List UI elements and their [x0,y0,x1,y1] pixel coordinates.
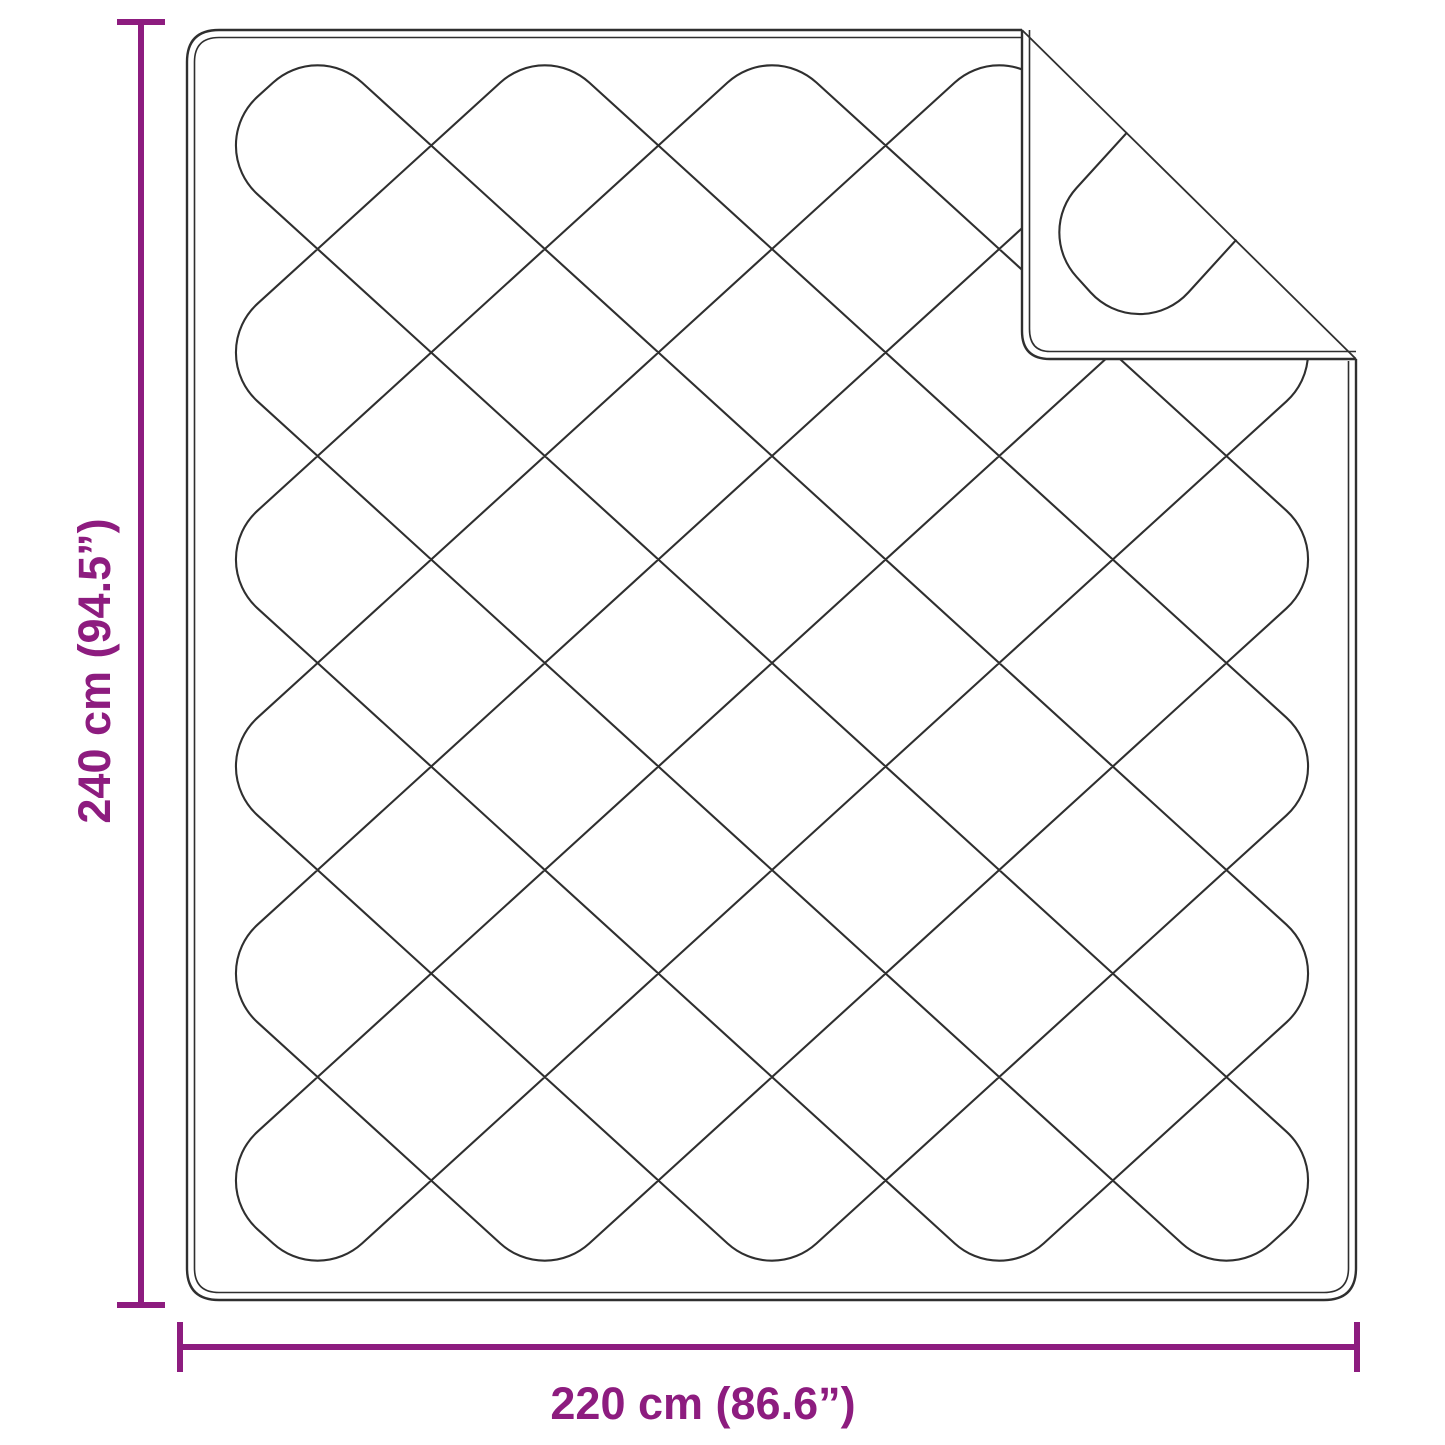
height-dimension-label: 240 cm (94.5”) [64,471,126,871]
width-dimension-label: 220 cm (86.6”) [453,1373,953,1435]
product-dimension-diagram: 240 cm (94.5”) 220 cm (86.6”) [0,0,1445,1445]
blanket-diagram [0,0,1445,1445]
